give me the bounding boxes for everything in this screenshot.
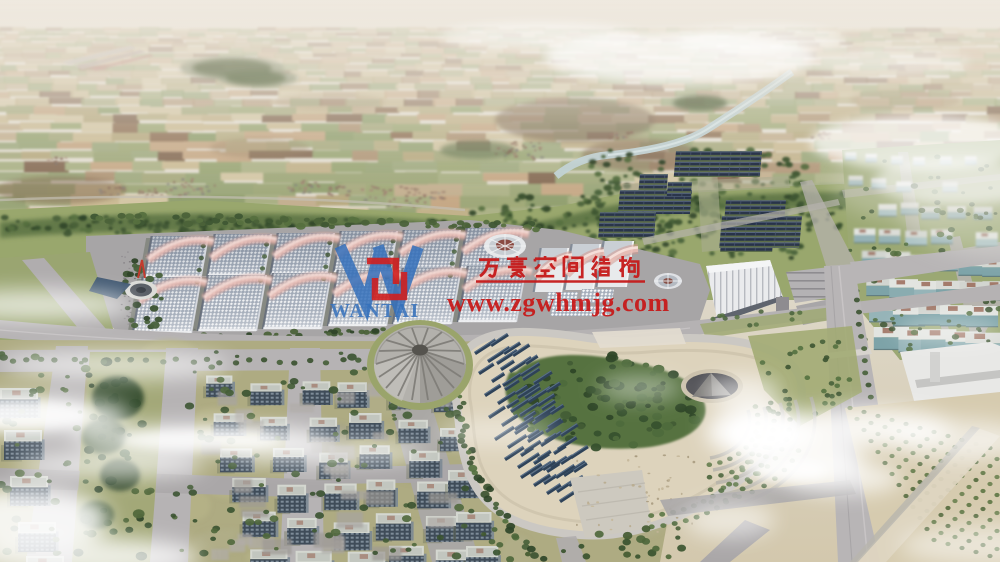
svg-text:WANTAI: WANTAI [330, 300, 420, 322]
svg-text:www.zgwhmjg.com: www.zgwhmjg.com [447, 288, 670, 317]
